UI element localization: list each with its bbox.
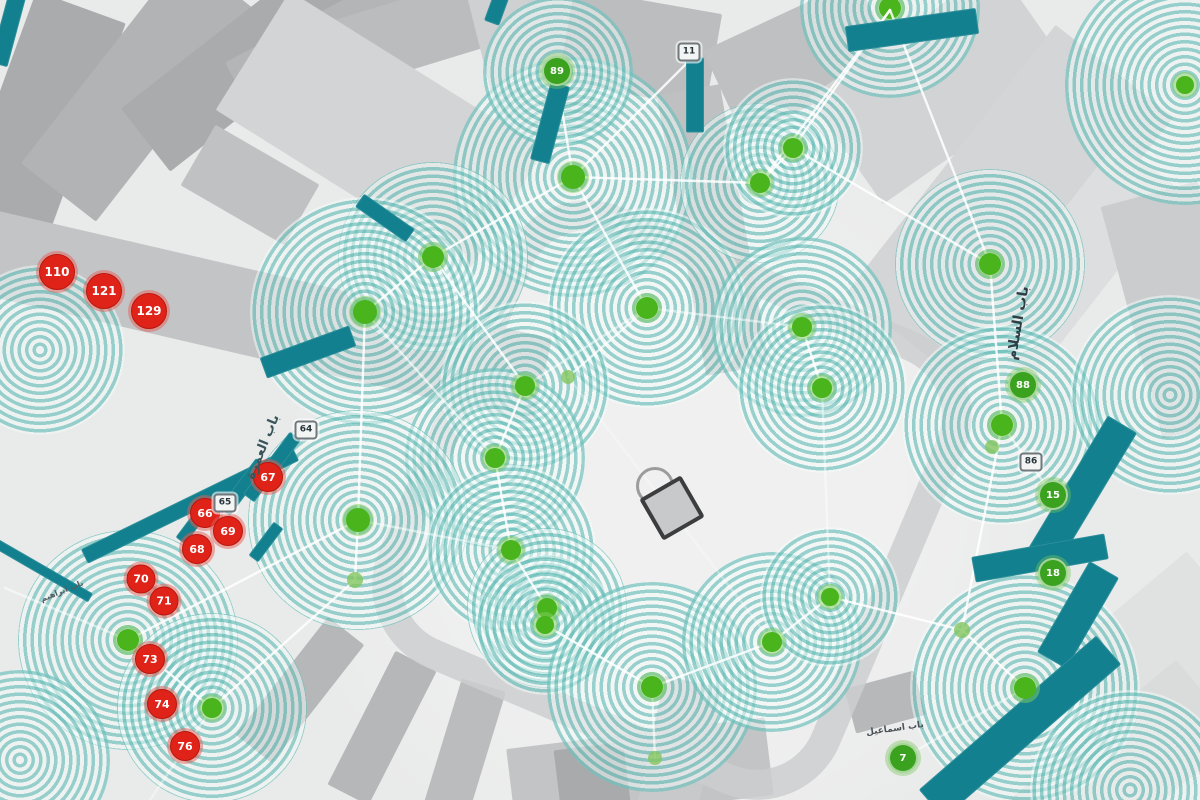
gate-number-red[interactable]: 129 bbox=[131, 293, 167, 329]
gate-badge-white[interactable]: 86 bbox=[1020, 453, 1043, 472]
network-line bbox=[962, 630, 1025, 688]
gate-number-red[interactable]: 110 bbox=[39, 254, 75, 290]
network-line bbox=[358, 312, 365, 520]
coverage-node[interactable] bbox=[1014, 677, 1036, 699]
network-line bbox=[772, 597, 830, 642]
coverage-node[interactable] bbox=[515, 376, 535, 396]
network-line bbox=[545, 625, 652, 687]
gate-number-red[interactable]: 69 bbox=[213, 516, 243, 546]
network-line bbox=[890, 10, 990, 264]
gate-badge-green[interactable]: 18 bbox=[1038, 558, 1068, 588]
network-line bbox=[495, 458, 511, 550]
network-line bbox=[568, 308, 647, 377]
coverage-node[interactable] bbox=[954, 622, 970, 638]
gate-number-red[interactable]: 73 bbox=[135, 644, 165, 674]
gate-number-red[interactable]: 71 bbox=[150, 587, 179, 616]
coverage-node[interactable] bbox=[991, 414, 1013, 436]
network-line bbox=[830, 597, 962, 630]
coverage-node[interactable] bbox=[346, 508, 370, 532]
network-line bbox=[128, 520, 358, 640]
gate-badge-green[interactable]: 7 bbox=[888, 743, 918, 773]
network-line bbox=[573, 177, 760, 183]
gate-badge-green[interactable]: 88 bbox=[1008, 370, 1038, 400]
network-line bbox=[647, 308, 802, 327]
gate-badge-white[interactable]: 64 bbox=[295, 421, 318, 440]
coverage-node[interactable] bbox=[485, 448, 505, 468]
coverage-node[interactable] bbox=[536, 616, 554, 634]
gate-badge-white[interactable]: 11 bbox=[678, 43, 701, 62]
coverage-node[interactable] bbox=[347, 572, 363, 588]
gate-badge-green[interactable]: 89 bbox=[542, 56, 572, 86]
gate-number-red[interactable]: 76 bbox=[170, 731, 200, 761]
network-line bbox=[990, 264, 1002, 425]
gate-number-red[interactable]: 74 bbox=[147, 689, 177, 719]
coverage-node[interactable] bbox=[422, 246, 444, 268]
coverage-node[interactable] bbox=[821, 588, 839, 606]
coverage-node[interactable] bbox=[561, 165, 585, 189]
network-line bbox=[433, 177, 573, 257]
coverage-node[interactable] bbox=[353, 300, 377, 324]
coverage-node[interactable] bbox=[812, 378, 832, 398]
coverage-node[interactable] bbox=[783, 138, 803, 158]
network-line bbox=[573, 62, 688, 177]
network-line bbox=[433, 257, 525, 386]
coverage-node[interactable] bbox=[648, 751, 662, 765]
network-line bbox=[365, 257, 433, 312]
gate-badge-green[interactable]: 15 bbox=[1038, 480, 1068, 510]
coverage-node[interactable] bbox=[792, 317, 812, 337]
network-line bbox=[793, 148, 990, 264]
network-line bbox=[525, 308, 647, 386]
coverage-node[interactable] bbox=[641, 676, 663, 698]
network-line bbox=[495, 386, 525, 458]
network-line bbox=[822, 388, 830, 597]
coverage-node[interactable] bbox=[117, 629, 139, 651]
gate-number-red[interactable]: 121 bbox=[86, 273, 122, 309]
coverage-node[interactable] bbox=[979, 253, 1001, 275]
network-line bbox=[365, 312, 495, 458]
coverage-node[interactable] bbox=[537, 598, 557, 618]
coverage-node[interactable] bbox=[636, 297, 658, 319]
coverage-node[interactable] bbox=[985, 440, 999, 454]
gate-badge-white[interactable]: 65 bbox=[214, 494, 237, 513]
gate-number-red[interactable]: 70 bbox=[127, 565, 156, 594]
coverage-node[interactable] bbox=[202, 698, 222, 718]
coverage-node[interactable] bbox=[762, 632, 782, 652]
haram-coverage-map: 1101211296766696870717374766465118689881… bbox=[0, 0, 1200, 800]
network-line bbox=[358, 520, 511, 550]
coverage-node[interactable] bbox=[750, 173, 770, 193]
coverage-node[interactable] bbox=[501, 540, 521, 560]
network-line bbox=[962, 425, 1002, 630]
gate-structure bbox=[686, 58, 704, 133]
network-line bbox=[5, 588, 128, 640]
network-line bbox=[652, 642, 772, 687]
network-line bbox=[573, 177, 647, 308]
network-line bbox=[212, 580, 355, 708]
coverage-node[interactable] bbox=[1176, 76, 1194, 94]
coverage-node[interactable] bbox=[561, 370, 575, 384]
gate-number-red[interactable]: 68 bbox=[182, 534, 212, 564]
